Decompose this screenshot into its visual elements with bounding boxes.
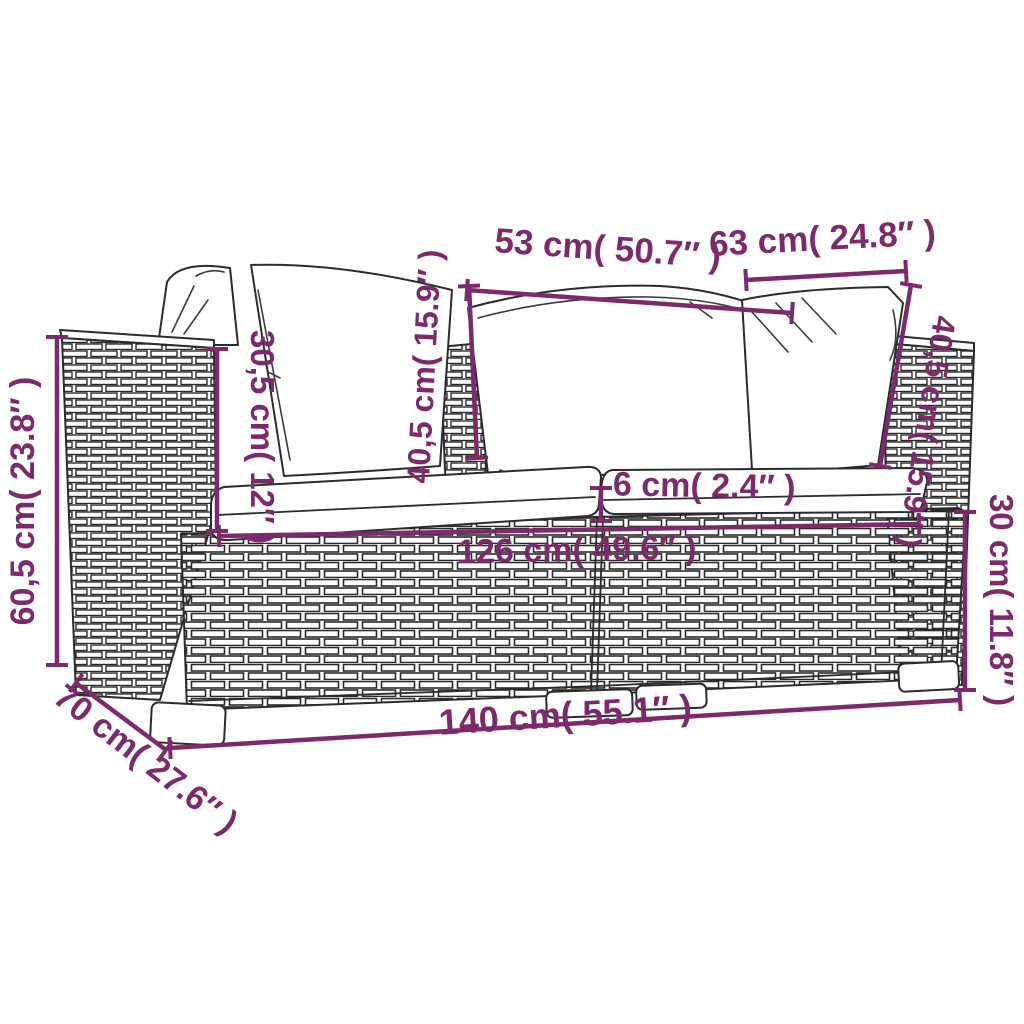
sofa-illustration: 60,5 cm( 23.8″ ) 30,5 cm( 12″ ) 40,5 cm(… [0, 0, 1024, 1024]
dim-seat-width-label: 126 cm( 49.6″ ) [457, 529, 697, 571]
dim-cushion-thickness-label: 6 cm( 2.4″ ) [613, 465, 796, 506]
dim-pillow-width-right-label: 63 cm( 24.8″ ) [708, 213, 937, 264]
dim-pillow-width-left-label: 53 cm( 50.7″ ) [493, 221, 722, 276]
dimension-diagram: 60,5 cm( 23.8″ ) 30,5 cm( 12″ ) 40,5 cm(… [0, 0, 1024, 1024]
back-pillow-right [742, 287, 903, 470]
dim-pillow-width-right: 63 cm( 24.8″ ) [708, 213, 937, 280]
dim-base-height-label: 30 cm( 11.8″ ) [983, 494, 1020, 706]
foot-right [898, 661, 959, 692]
dim-total-height-label: 60,5 cm( 23.8″ ) [4, 377, 42, 626]
dim-armrest-height-label: 30,5 cm( 12″ ) [244, 330, 281, 544]
dim-total-height: 60,5 cm( 23.8″ ) [4, 337, 57, 665]
back-pillow-far-left [158, 266, 238, 345]
back-pillow-middle [468, 286, 788, 475]
foot-left [150, 702, 226, 746]
dim-base-height: 30 cm( 11.8″ ) [965, 494, 1020, 706]
